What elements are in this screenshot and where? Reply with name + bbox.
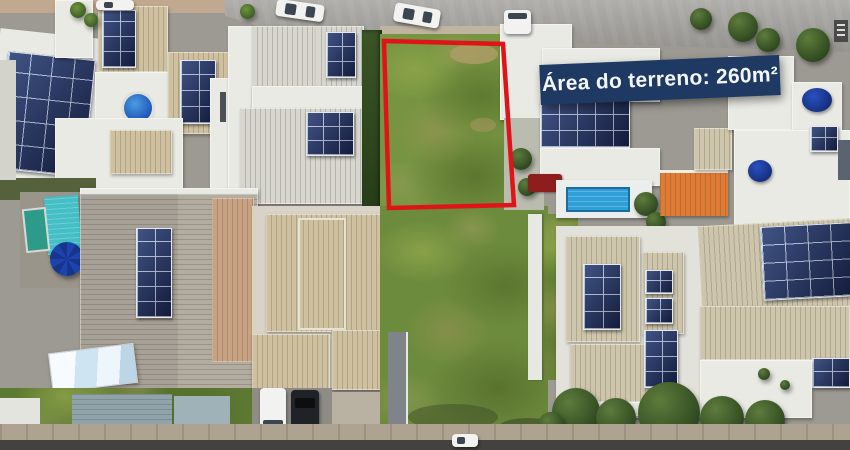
area-banner-label: Área do terreno: 260m²	[541, 63, 778, 97]
aerial-photo: Área do terreno: 260m²	[0, 0, 850, 450]
lot-outline	[384, 41, 514, 208]
